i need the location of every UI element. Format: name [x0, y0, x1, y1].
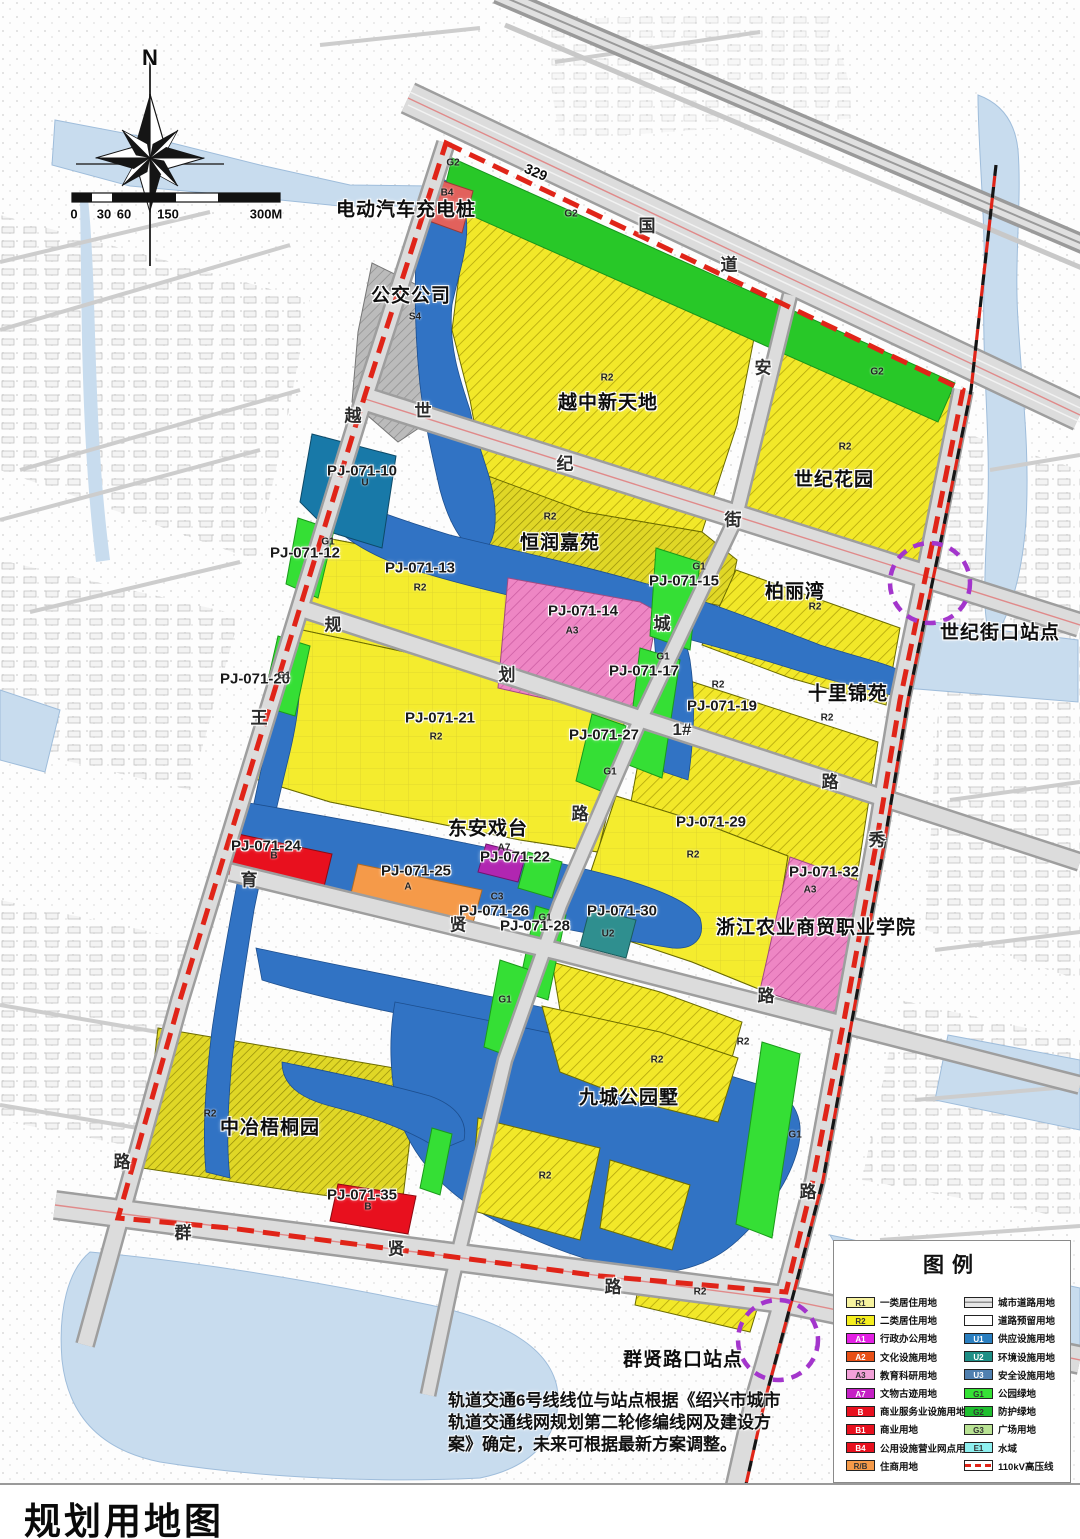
legend-swatch: R1: [846, 1297, 875, 1308]
legend-label: 文物古迹用地: [880, 1386, 937, 1400]
legend-swatch: [964, 1315, 993, 1326]
legend-row: B1商业用地: [846, 1420, 958, 1438]
legend-row: 110kV高压线: [964, 1457, 1068, 1475]
legend-row: R/B住商用地: [846, 1457, 958, 1475]
legend-swatch: [964, 1460, 993, 1471]
legend-row: A1行政办公用地: [846, 1329, 958, 1347]
legend-row: 城市道路用地: [964, 1293, 1068, 1311]
legend-label: 商业用地: [880, 1422, 918, 1436]
legend-label: 防护绿地: [998, 1404, 1036, 1418]
legend-swatch: G2: [964, 1406, 993, 1417]
legend-label: 安全设施用地: [998, 1368, 1055, 1382]
legend-row: G2防护绿地: [964, 1402, 1068, 1420]
legend-label: 广场用地: [998, 1422, 1036, 1436]
legend-swatch: U3: [964, 1369, 993, 1380]
legend-swatch: A2: [846, 1351, 875, 1362]
legend-title: 图例: [834, 1249, 1070, 1279]
legend-swatch: A3: [846, 1369, 875, 1380]
legend-row: R2二类居住用地: [846, 1311, 958, 1329]
legend-label: 二类居住用地: [880, 1313, 937, 1327]
legend-swatch: B: [846, 1406, 875, 1417]
legend-swatch: G1: [964, 1388, 993, 1399]
legend-row: U3安全设施用地: [964, 1366, 1068, 1384]
legend-label: 行政办公用地: [880, 1331, 937, 1345]
legend-label: 110kV高压线: [998, 1459, 1053, 1473]
legend-label: 公园绿地: [998, 1386, 1036, 1400]
legend-swatch: A1: [846, 1333, 875, 1344]
legend-swatch: A7: [846, 1388, 875, 1399]
legend-row: E1水域: [964, 1439, 1068, 1457]
legend-swatch: E1: [964, 1442, 993, 1453]
legend-label: 教育科研用地: [880, 1368, 937, 1382]
legend-swatch: U1: [964, 1333, 993, 1344]
rail-transit-note: 轨道交通6号线线位与站点根据《绍兴市城市轨道交通线网规划第二轮修编线网及建设方案…: [448, 1390, 784, 1455]
legend-row: G3广场用地: [964, 1420, 1068, 1438]
legend-label: 道路预留用地: [998, 1313, 1055, 1327]
legend-row: U2环境设施用地: [964, 1348, 1068, 1366]
legend-row: G1公园绿地: [964, 1384, 1068, 1402]
scale-bar: [72, 193, 280, 202]
map-canvas: N03060150300M电动汽车充电桩公交公司越中新天地世纪花园恒润嘉苑柏丽湾…: [0, 0, 1080, 1483]
legend-label: 水域: [998, 1441, 1017, 1455]
legend-row: R1一类居住用地: [846, 1293, 958, 1311]
legend-label: 商业服务业设施用地: [880, 1404, 966, 1418]
legend-column-right: 城市道路用地道路预留用地U1供应设施用地U2环境设施用地U3安全设施用地G1公园…: [964, 1293, 1068, 1475]
legend-swatch: U2: [964, 1351, 993, 1362]
legend-row: 道路预留用地: [964, 1311, 1068, 1329]
legend-swatch: B4: [846, 1442, 875, 1453]
legend-label: 公用设施营业网点用地: [880, 1441, 975, 1455]
legend-column-left: R1一类居住用地R2二类居住用地A1行政办公用地A2文化设施用地A3教育科研用地…: [846, 1293, 958, 1475]
planning-map-page: N03060150300M电动汽车充电桩公交公司越中新天地世纪花园恒润嘉苑柏丽湾…: [0, 0, 1080, 1539]
legend-label: 一类居住用地: [880, 1295, 937, 1309]
legend-label: 供应设施用地: [998, 1331, 1055, 1345]
legend-swatch: G3: [964, 1424, 993, 1435]
legend-swatch: R2: [846, 1315, 875, 1326]
legend-label: 文化设施用地: [880, 1350, 937, 1364]
legend-swatch: [964, 1297, 993, 1308]
legend-label: 环境设施用地: [998, 1350, 1055, 1364]
legend-row: B商业服务业设施用地: [846, 1402, 958, 1420]
footer-bar: 规划用地图: [0, 1483, 1080, 1539]
page-title: 规划用地图: [24, 1491, 224, 1539]
legend: 图例 R1一类居住用地R2二类居住用地A1行政办公用地A2文化设施用地A3教育科…: [833, 1240, 1071, 1483]
legend-row: U1供应设施用地: [964, 1329, 1068, 1347]
legend-label: 住商用地: [880, 1459, 918, 1473]
legend-row: A7文物古迹用地: [846, 1384, 958, 1402]
legend-label: 城市道路用地: [998, 1295, 1055, 1309]
legend-row: A3教育科研用地: [846, 1366, 958, 1384]
legend-swatch: R/B: [846, 1460, 875, 1471]
legend-swatch: B1: [846, 1424, 875, 1435]
legend-row: A2文化设施用地: [846, 1348, 958, 1366]
legend-row: B4公用设施营业网点用地: [846, 1439, 958, 1457]
